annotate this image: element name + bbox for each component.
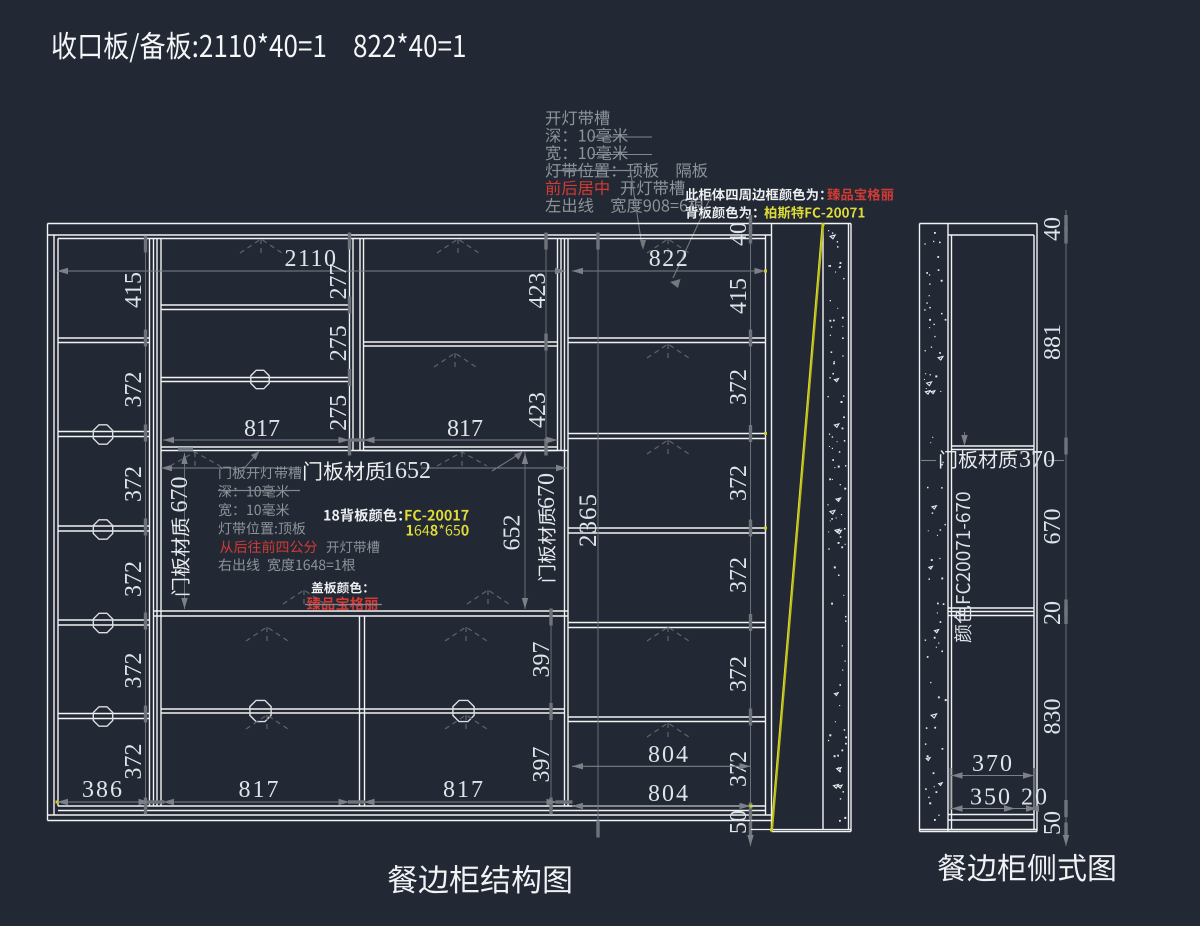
svg-text:817: 817 [447,416,483,442]
svg-text:372: 372 [121,744,147,780]
svg-text:20: 20 [1040,601,1066,625]
svg-text:372: 372 [726,656,752,692]
svg-text:822: 822 [649,246,690,272]
svg-text:275: 275 [326,395,352,431]
svg-text:397: 397 [529,747,555,783]
svg-text:372: 372 [121,466,147,502]
svg-text:397: 397 [529,642,555,678]
svg-text:370: 370 [972,751,1014,777]
svg-text:372: 372 [726,369,752,405]
svg-text:804: 804 [648,742,690,768]
svg-text:1652: 1652 [383,458,431,484]
svg-text:2365: 2365 [575,493,602,547]
svg-text:423: 423 [525,273,551,309]
svg-text:372: 372 [121,653,147,689]
svg-text:372: 372 [121,372,147,408]
svg-text:40: 40 [726,222,752,246]
svg-text:372: 372 [121,561,147,597]
svg-text:817: 817 [443,777,485,803]
svg-text:804: 804 [648,781,690,807]
svg-text:830: 830 [1040,699,1066,735]
svg-text:423: 423 [525,392,551,428]
svg-text:372: 372 [726,557,752,593]
svg-text:415: 415 [726,278,752,314]
svg-text:350: 350 [970,785,1012,811]
svg-text:277: 277 [326,264,352,300]
svg-text:415: 415 [121,272,147,308]
svg-text:372: 372 [726,465,752,501]
svg-text:670: 670 [1040,509,1066,545]
svg-text:50: 50 [1040,811,1066,835]
svg-text:40: 40 [1040,217,1066,241]
svg-text:652: 652 [500,515,526,551]
svg-text:370: 370 [1019,447,1055,473]
svg-text:372: 372 [726,751,752,787]
svg-text:670: 670 [534,473,560,509]
svg-text:817: 817 [239,777,281,803]
svg-text:386: 386 [82,777,124,803]
svg-text:670: 670 [167,477,193,513]
svg-text:275: 275 [326,325,352,361]
svg-text:817: 817 [244,416,280,442]
svg-text:881: 881 [1040,324,1066,360]
svg-text:50: 50 [726,810,752,834]
